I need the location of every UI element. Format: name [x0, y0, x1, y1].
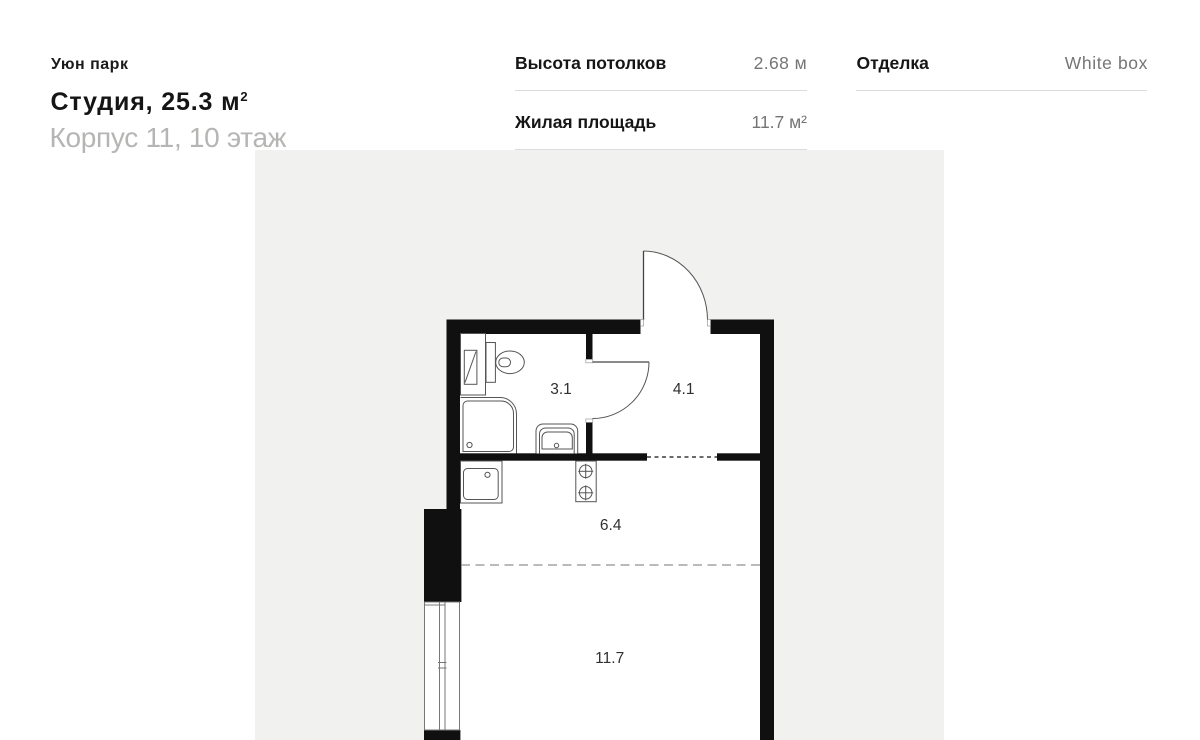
svg-text:4.1: 4.1 [673, 381, 695, 398]
svg-text:6.4: 6.4 [600, 517, 622, 534]
svg-text:3.1: 3.1 [550, 381, 572, 398]
svg-text:11.7: 11.7 [595, 650, 624, 667]
